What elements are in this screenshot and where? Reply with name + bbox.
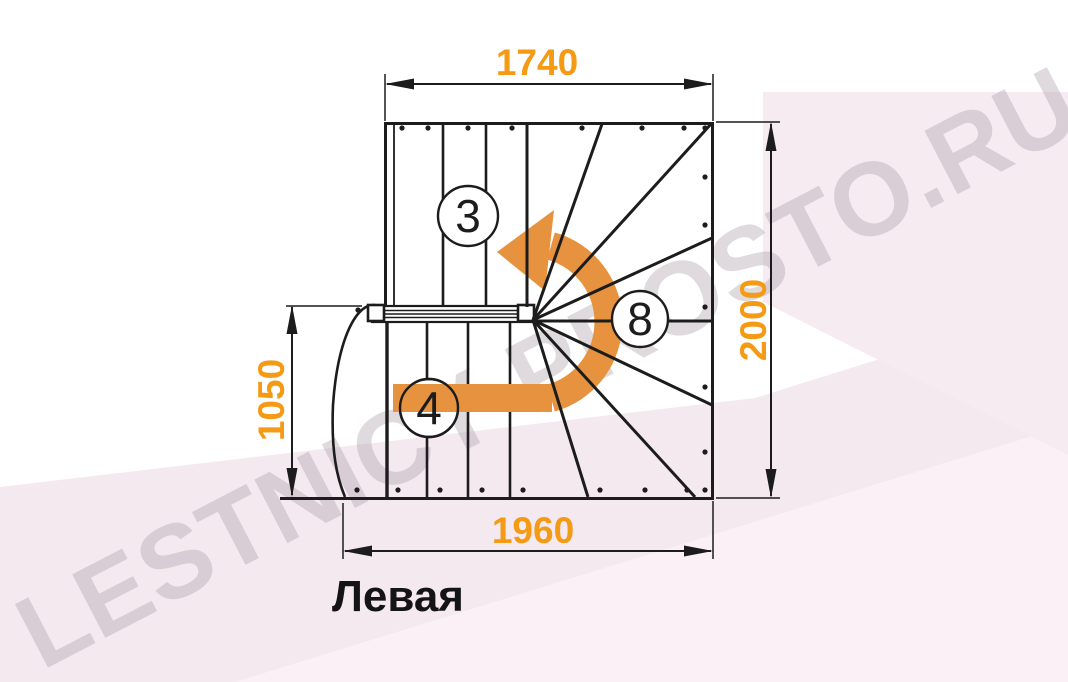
turn-direction-arrow	[393, 210, 608, 398]
dimension-right-height: 2000	[716, 122, 780, 498]
landing-board	[368, 305, 534, 322]
stair-plan-drawing: 4 3 8 1740 2000	[0, 0, 1068, 682]
winder-count-number: 8	[627, 293, 653, 345]
dimension-top-width-value: 1740	[496, 42, 578, 83]
dimension-bottom-width-value: 1960	[492, 510, 574, 551]
dimension-top-width: 1740	[385, 42, 713, 121]
winder-count: 8	[612, 291, 668, 347]
dimension-left-lower-height: 1050	[251, 305, 362, 497]
upper-flight-count-number: 3	[455, 190, 481, 242]
curved-stringer-line	[333, 305, 382, 497]
stair-orientation-label: Левая	[332, 572, 464, 621]
dimension-bottom-width: 1960	[343, 501, 713, 559]
newel-post-center	[518, 305, 534, 321]
newel-post-left	[368, 305, 384, 321]
dimension-left-lower-height-value: 1050	[251, 359, 292, 441]
stair-plan-diagram: LESTNICY-PROSTO.RU	[0, 0, 1068, 682]
lower-flight-count-number: 4	[416, 382, 442, 434]
dimension-right-height-value: 2000	[733, 279, 774, 361]
upper-flight-count: 3	[438, 186, 498, 246]
